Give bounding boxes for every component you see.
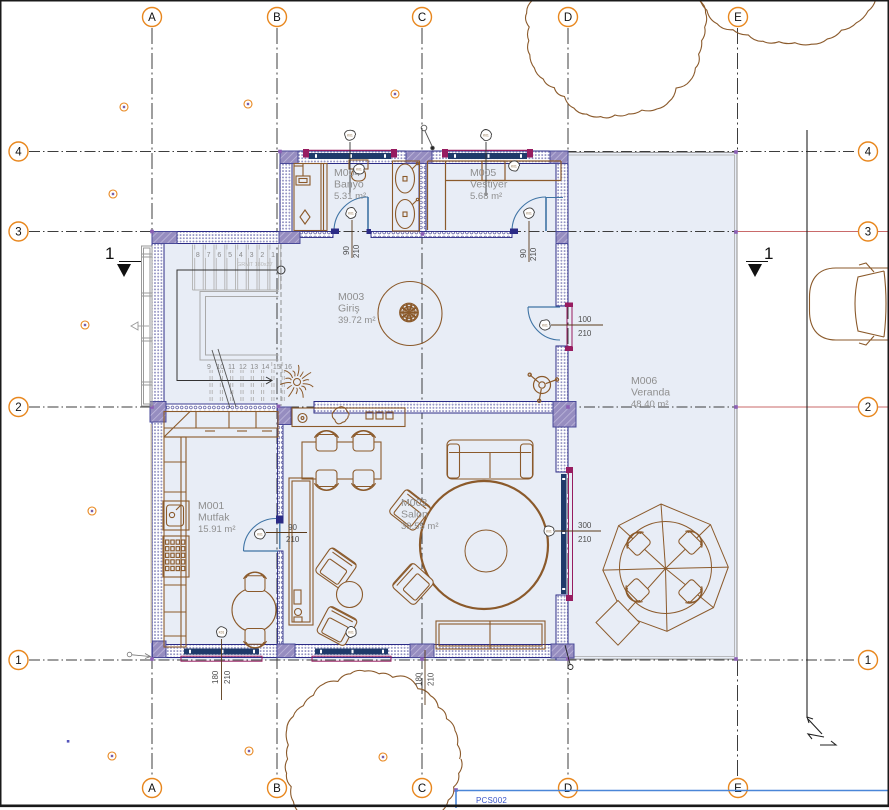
svg-text:39.72 m²: 39.72 m² bbox=[338, 315, 376, 326]
svg-text:E: E bbox=[734, 783, 742, 795]
svg-text:2: 2 bbox=[260, 252, 264, 259]
svg-text:K01: K01 bbox=[546, 529, 552, 533]
svg-text:C: C bbox=[418, 12, 426, 24]
svg-text:39.55 m²: 39.55 m² bbox=[401, 521, 439, 532]
svg-text:Vestiyer: Vestiyer bbox=[470, 179, 508, 191]
svg-text:K01: K01 bbox=[257, 532, 263, 536]
svg-text:3: 3 bbox=[250, 252, 254, 259]
svg-text:4: 4 bbox=[15, 147, 22, 159]
svg-text:M001: M001 bbox=[198, 500, 224, 512]
svg-text:12: 12 bbox=[239, 364, 247, 371]
svg-text:210: 210 bbox=[427, 672, 436, 686]
svg-text:M002: M002 bbox=[401, 497, 427, 509]
svg-text:5.31 m²: 5.31 m² bbox=[334, 191, 366, 202]
svg-text:Mutfak: Mutfak bbox=[198, 512, 230, 524]
svg-text:15: 15 bbox=[273, 364, 281, 371]
svg-text:90: 90 bbox=[342, 246, 351, 255]
svg-text:B: B bbox=[273, 783, 281, 795]
svg-text:1: 1 bbox=[15, 655, 21, 667]
svg-text:3: 3 bbox=[865, 227, 871, 239]
svg-text:D: D bbox=[564, 783, 572, 795]
svg-text:Giriş: Giriş bbox=[338, 303, 360, 315]
svg-text:210: 210 bbox=[578, 535, 592, 544]
svg-text:K01: K01 bbox=[356, 167, 362, 171]
svg-text:1: 1 bbox=[764, 244, 773, 263]
svg-text:6: 6 bbox=[217, 252, 221, 259]
svg-text:C: C bbox=[418, 783, 426, 795]
svg-text:M003: M003 bbox=[338, 291, 364, 303]
svg-text:90: 90 bbox=[519, 249, 528, 258]
svg-text:K01: K01 bbox=[348, 630, 354, 634]
svg-text:2: 2 bbox=[865, 402, 871, 414]
svg-text:100: 100 bbox=[578, 315, 592, 324]
svg-text:90: 90 bbox=[288, 523, 297, 532]
svg-text:180: 180 bbox=[211, 670, 220, 684]
svg-text:E: E bbox=[734, 12, 742, 24]
svg-text:300: 300 bbox=[578, 521, 592, 530]
svg-text:5.68 m²: 5.68 m² bbox=[470, 191, 502, 202]
svg-text:A: A bbox=[148, 783, 156, 795]
svg-text:3: 3 bbox=[15, 227, 21, 239]
svg-text:K01: K01 bbox=[347, 133, 353, 137]
svg-text:4: 4 bbox=[239, 252, 243, 259]
svg-text:210: 210 bbox=[286, 535, 300, 544]
svg-text:8: 8 bbox=[196, 252, 200, 259]
svg-text:GRMT 180x27: GRMT 180x27 bbox=[237, 262, 273, 268]
svg-text:210: 210 bbox=[352, 244, 361, 258]
svg-text:5: 5 bbox=[228, 252, 232, 259]
svg-text:Banyo: Banyo bbox=[334, 179, 364, 191]
svg-text:K01: K01 bbox=[348, 211, 354, 215]
svg-text:K01: K01 bbox=[219, 630, 225, 634]
svg-text:1: 1 bbox=[271, 252, 275, 259]
svg-text:4: 4 bbox=[865, 147, 872, 159]
svg-text:15.91 m²: 15.91 m² bbox=[198, 524, 236, 535]
svg-text:210: 210 bbox=[223, 670, 232, 684]
svg-text:1: 1 bbox=[105, 244, 114, 263]
svg-text:48.40 m²: 48.40 m² bbox=[631, 399, 669, 410]
svg-text:11: 11 bbox=[228, 364, 235, 371]
svg-text:M006: M006 bbox=[631, 375, 657, 387]
svg-text:210: 210 bbox=[529, 247, 538, 261]
svg-text:Veranda: Veranda bbox=[631, 387, 670, 399]
svg-text:2: 2 bbox=[15, 402, 21, 414]
svg-text:K01: K01 bbox=[511, 164, 517, 168]
svg-text:PCS002: PCS002 bbox=[476, 796, 507, 805]
svg-text:16: 16 bbox=[284, 364, 292, 371]
svg-text:B: B bbox=[273, 12, 281, 24]
svg-text:K01: K01 bbox=[483, 133, 489, 137]
svg-text:13: 13 bbox=[250, 364, 258, 371]
svg-text:K01: K01 bbox=[526, 211, 532, 215]
svg-text:D: D bbox=[564, 12, 572, 24]
svg-text:14: 14 bbox=[262, 364, 270, 371]
svg-text:180: 180 bbox=[415, 672, 424, 686]
svg-text:Salon: Salon bbox=[401, 509, 428, 521]
svg-text:210: 210 bbox=[578, 329, 592, 338]
svg-text:9: 9 bbox=[207, 364, 211, 371]
svg-text:M005: M005 bbox=[470, 167, 496, 179]
svg-text:1: 1 bbox=[865, 655, 871, 667]
svg-text:A: A bbox=[148, 12, 156, 24]
svg-text:K01: K01 bbox=[542, 323, 548, 327]
svg-text:7: 7 bbox=[207, 252, 211, 259]
